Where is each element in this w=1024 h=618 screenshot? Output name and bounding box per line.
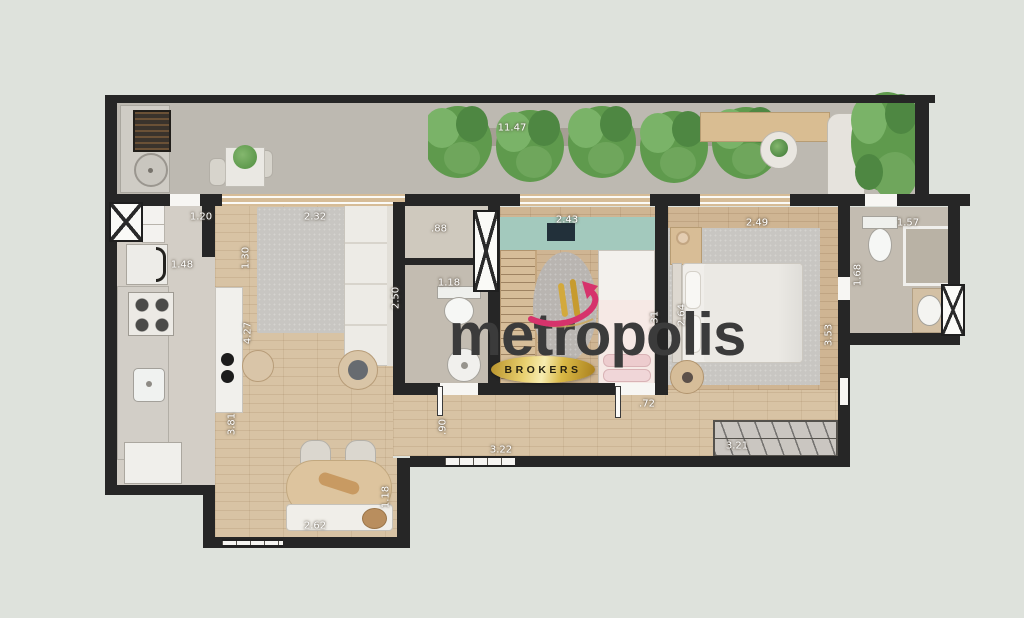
brand-badge: BROKERS [491,356,595,383]
pillow-icon [603,369,651,382]
sliding-glass-door [520,194,650,206]
sliding-glass-door [700,194,790,206]
wall-dining-left [203,490,215,548]
wall-laundry-stub [202,202,215,257]
kitchen-stool [242,350,274,382]
floor-plan: 11.471.202.321.481.304.273.812.621.18.90… [0,0,1024,618]
nightstand-clock-icon [682,372,693,383]
dining-window [222,539,283,547]
cooktop-burner-icon [221,353,234,366]
vanity-basin [917,295,942,326]
island-counter [215,287,243,413]
bathroom2-door [838,277,850,300]
wall-dining-right [397,458,410,548]
brand-logo-arrow-icon [527,277,609,329]
service-door [170,194,200,206]
sliding-glass-door [222,194,405,206]
wall-balcony [405,194,520,206]
bathroom2-balcony-door [865,194,897,206]
bathroom2-window [941,284,965,336]
bedroom-door-leaf [615,386,621,418]
bedroom-door [615,383,655,395]
table-plant-icon [770,139,788,157]
refrigerator [124,442,182,484]
balcony-sink-drain-icon [148,168,153,173]
headboard-wall [500,217,655,250]
lamp-icon [676,231,690,245]
wall-hall-top [478,383,615,395]
wall-living-bath [393,202,405,383]
wall-balcony [650,194,700,206]
bathroom1-door [440,383,478,395]
stove [128,292,174,336]
toilet-bowl [868,228,892,262]
coffee-table-tray-icon [348,360,368,380]
cooktop-burner-icon [221,370,234,383]
bistro-chair-left [209,158,226,186]
kitchen-faucet-icon [146,381,152,387]
wall-top [105,95,935,103]
wall-left [105,95,117,495]
desk-tv [547,223,575,241]
wall-hall-top [655,383,668,395]
washer-door-icon [156,247,166,282]
laundry-cabinet-divider [142,224,165,225]
wall-balcony [897,194,970,206]
bedroom1-wall-window [839,377,849,406]
bathroom1-door-leaf [437,386,443,416]
service-window [109,202,143,242]
wall-balcony [790,194,865,206]
wall-kitchen-bottom [105,485,215,495]
grill [133,110,171,152]
wall-hall-bottom [515,456,850,467]
shaft [473,210,499,292]
hall-window [445,456,515,467]
wall-balcony-right [915,103,929,194]
wardrobe-divider [713,438,838,439]
wall-hall-bottom [410,456,445,467]
bistro-plant-icon [233,145,257,169]
wall-hall-top [393,383,440,395]
wall-bedroom1-right [838,206,850,277]
dining-pouf [362,508,387,529]
